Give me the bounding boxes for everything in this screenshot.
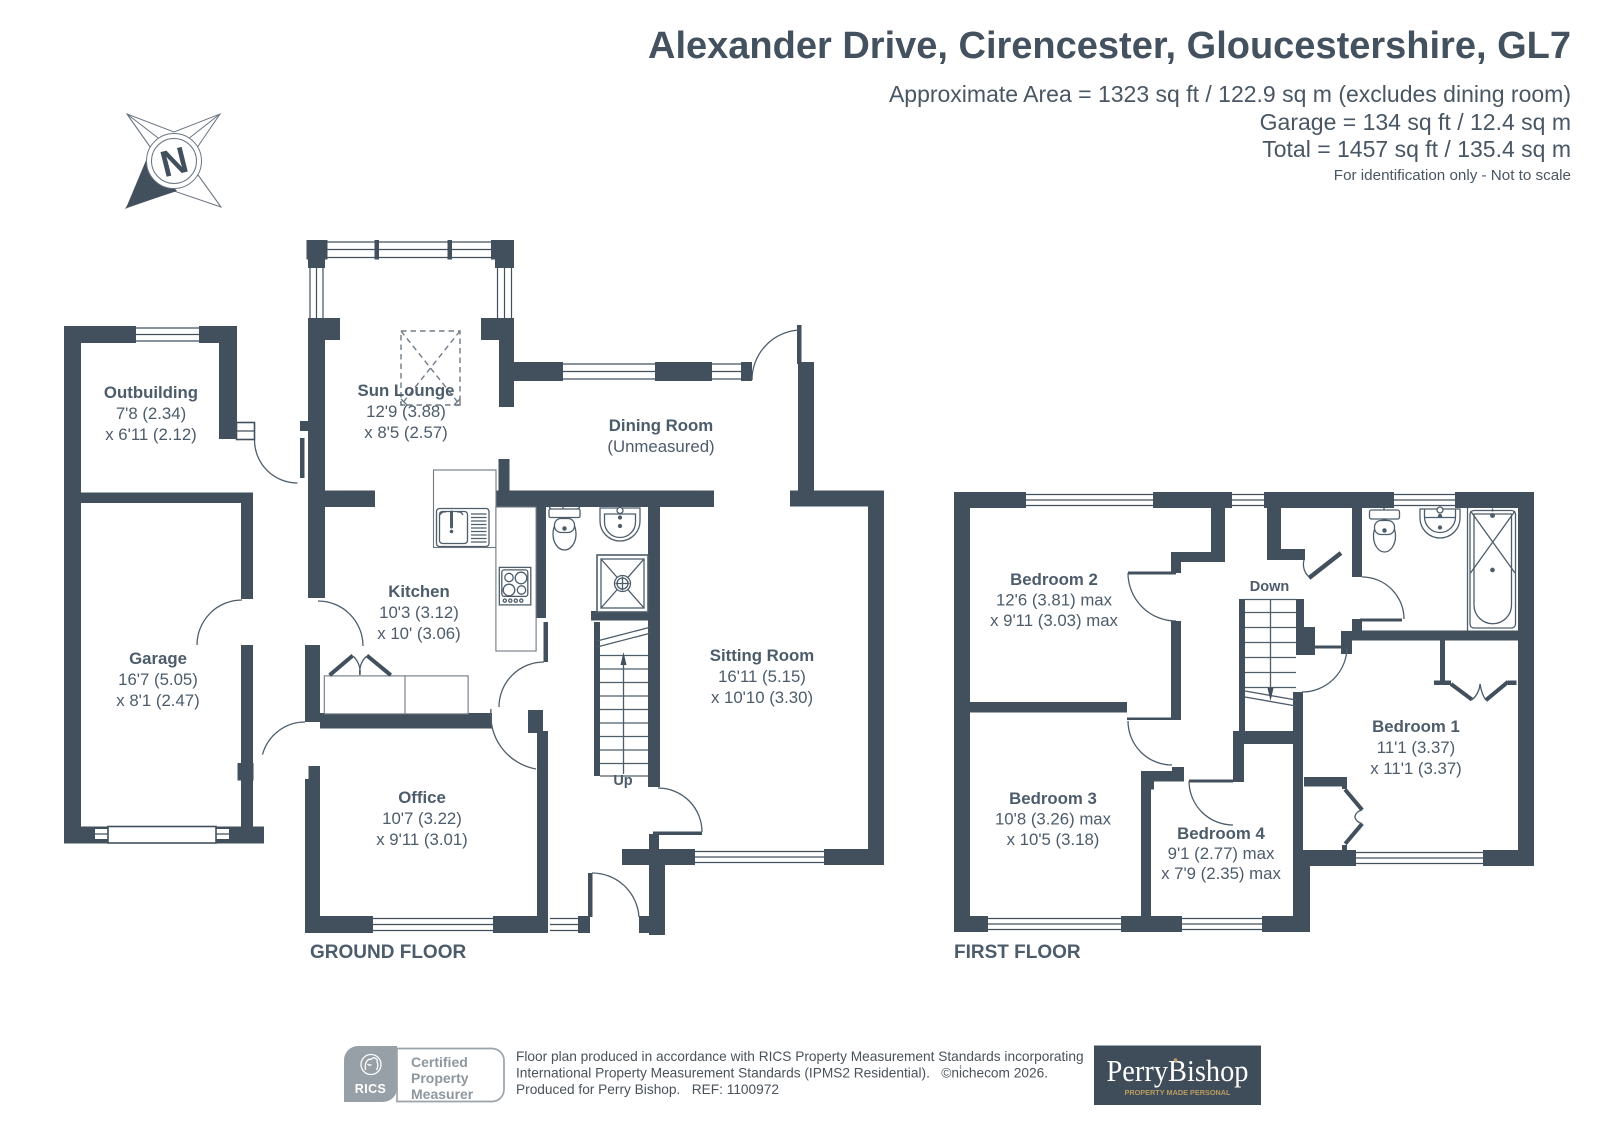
svg-text:Total = 1457 sq ft / 135.4 sq: Total = 1457 sq ft / 135.4 sq m xyxy=(1262,136,1571,162)
svg-text:GROUND FLOOR: GROUND FLOOR xyxy=(310,942,466,963)
svg-text:x 7'9 (2.35) max: x 7'9 (2.35) max xyxy=(1161,864,1281,883)
svg-text:10'7 (3.22): 10'7 (3.22) xyxy=(382,809,462,828)
svg-text:11'1 (3.37): 11'1 (3.37) xyxy=(1377,738,1455,757)
svg-text:x 6'11 (2.12): x 6'11 (2.12) xyxy=(105,425,197,444)
svg-text:Bedroom 2: Bedroom 2 xyxy=(1010,570,1098,589)
svg-text:7'8 (2.34): 7'8 (2.34) xyxy=(116,404,186,423)
svg-text:16'7 (5.05): 16'7 (5.05) xyxy=(118,670,198,689)
svg-text:Produced for Perry Bishop. R: Produced for Perry Bishop. REF: 1100972 xyxy=(516,1082,779,1097)
svg-text:10'3 (3.12): 10'3 (3.12) xyxy=(379,603,459,622)
svg-text:(Unmeasured): (Unmeasured) xyxy=(607,437,714,456)
svg-text:16'11 (5.15): 16'11 (5.15) xyxy=(718,667,806,686)
svg-text:Garage = 134 sq ft / 12.4 sq m: Garage = 134 sq ft / 12.4 sq m xyxy=(1260,109,1571,135)
svg-text:FIRST FLOOR: FIRST FLOOR xyxy=(954,942,1081,963)
svg-text:10'8 (3.26) max: 10'8 (3.26) max xyxy=(995,810,1112,829)
svg-text:Sitting Room: Sitting Room xyxy=(710,646,814,665)
svg-text:12'9 (3.88): 12'9 (3.88) xyxy=(366,402,446,421)
svg-text:Bedroom 4: Bedroom 4 xyxy=(1177,824,1265,843)
svg-text:Outbuilding: Outbuilding xyxy=(104,383,198,402)
svg-text:For identification only - Not: For identification only - Not to scale xyxy=(1334,167,1571,184)
svg-text:Property: Property xyxy=(411,1070,469,1086)
svg-text:Garage: Garage xyxy=(129,649,187,668)
svg-text:x 10'10 (3.30): x 10'10 (3.30) xyxy=(711,688,813,707)
svg-text:RICS: RICS xyxy=(355,1082,386,1096)
svg-text:Dining Room: Dining Room xyxy=(609,416,713,435)
svg-text:Bedroom 3: Bedroom 3 xyxy=(1009,789,1097,808)
svg-text:International Property Measure: International Property Measurement Stand… xyxy=(516,1066,1048,1081)
svg-text:12'6 (3.81) max: 12'6 (3.81) max xyxy=(996,591,1113,610)
svg-text:Up: Up xyxy=(613,773,632,789)
svg-text:x 11'1 (3.37): x 11'1 (3.37) xyxy=(1370,759,1462,778)
svg-text:x 8'1 (2.47): x 8'1 (2.47) xyxy=(116,691,199,710)
svg-text:x 9'11 (3.01): x 9'11 (3.01) xyxy=(376,830,468,849)
svg-text:Certified: Certified xyxy=(411,1054,468,1070)
svg-text:Kitchen: Kitchen xyxy=(388,582,450,601)
svg-text:9'1 (2.77) max: 9'1 (2.77) max xyxy=(1168,844,1275,863)
svg-text:Alexander Drive, Cirencester,: Alexander Drive, Cirencester, Gloucester… xyxy=(648,25,1571,67)
svg-text:PerryBishop: PerryBishop xyxy=(1107,1053,1249,1088)
svg-text:x 10' (3.06): x 10' (3.06) xyxy=(377,624,460,643)
svg-text:Measurer: Measurer xyxy=(411,1086,474,1102)
svg-text:Office: Office xyxy=(398,788,446,807)
svg-text:x 9'11 (3.03) max: x 9'11 (3.03) max xyxy=(990,611,1118,630)
svg-text:x 8'5 (2.57): x 8'5 (2.57) xyxy=(364,423,447,442)
svg-text:x 10'5 (3.18): x 10'5 (3.18) xyxy=(1007,830,1100,849)
svg-text:Approximate Area = 1323 sq ft: Approximate Area = 1323 sq ft / 122.9 sq… xyxy=(889,81,1571,107)
svg-text:Floor plan produced in accorda: Floor plan produced in accordance with R… xyxy=(516,1049,1084,1064)
svg-text:Sun Lounge: Sun Lounge xyxy=(358,381,455,400)
svg-text:Down: Down xyxy=(1250,579,1289,595)
svg-text:PROPERTY MADE PERSONAL: PROPERTY MADE PERSONAL xyxy=(1125,1088,1231,1097)
svg-text:Bedroom 1: Bedroom 1 xyxy=(1372,717,1460,736)
